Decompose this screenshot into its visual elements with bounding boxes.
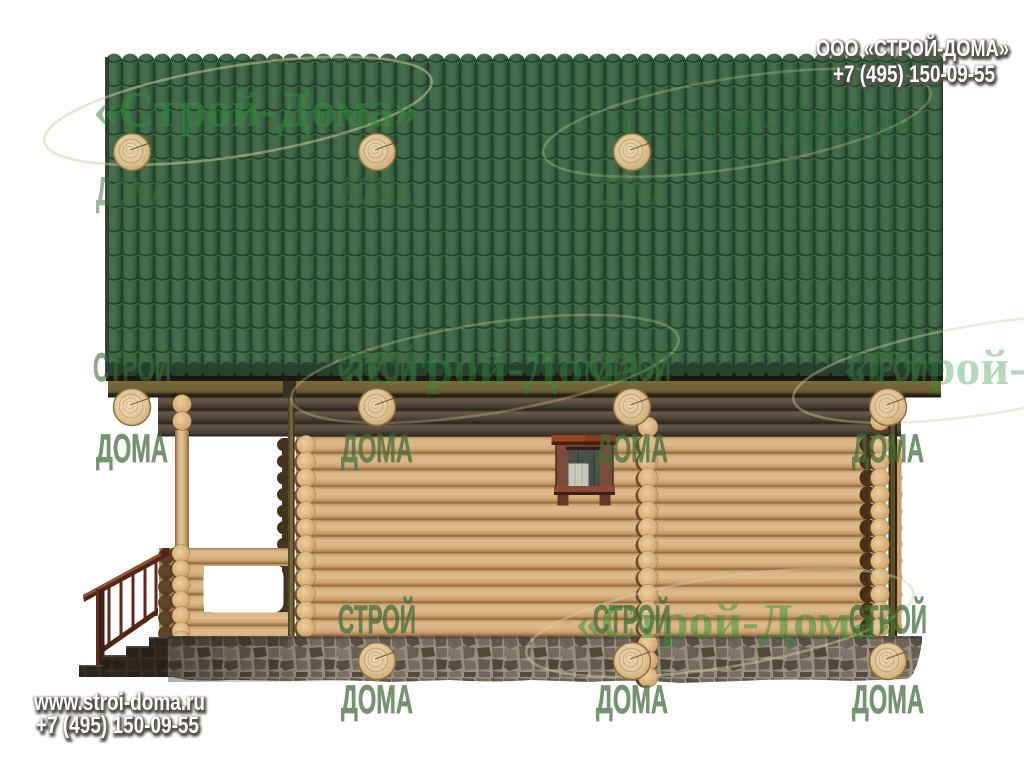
svg-text:ДОМА: ДОМА [596, 427, 668, 471]
svg-text:ДОМА: ДОМА [852, 427, 924, 471]
svg-text:ДОМА: ДОМА [96, 170, 168, 214]
svg-text:СТРОЙ: СТРОЙ [338, 596, 416, 642]
svg-text:СТРОЙ: СТРОЙ [593, 344, 671, 390]
svg-text:ДОМА: ДОМА [596, 170, 668, 214]
svg-text:СТРОЙ: СТРОЙ [338, 344, 416, 390]
svg-text:+7 (495) 150-09-55: +7 (495) 150-09-55 [833, 61, 995, 88]
svg-text:ДОМА: ДОМА [341, 427, 413, 471]
svg-text:+7 (495) 150-09-55: +7 (495) 150-09-55 [36, 712, 199, 739]
svg-text:ДОМА: ДОМА [341, 170, 413, 214]
svg-text:ДОМА: ДОМА [852, 678, 924, 722]
svg-text:ДОМА: ДОМА [341, 678, 413, 722]
svg-text:СТРОЙ: СТРОЙ [849, 344, 927, 390]
svg-text:СТРОЙ: СТРОЙ [593, 596, 671, 642]
svg-text:«Строй-Дома»: «Строй-Дома» [94, 81, 419, 137]
svg-text:СТРОЙ: СТРОЙ [849, 596, 927, 642]
svg-text:ДОМА: ДОМА [596, 678, 668, 722]
svg-text:ООО «СТРОЙ-ДОМА»: ООО «СТРОЙ-ДОМА» [816, 34, 1009, 61]
svg-text:СТРОЙ: СТРОЙ [93, 344, 171, 390]
svg-text:ДОМА: ДОМА [96, 427, 168, 471]
